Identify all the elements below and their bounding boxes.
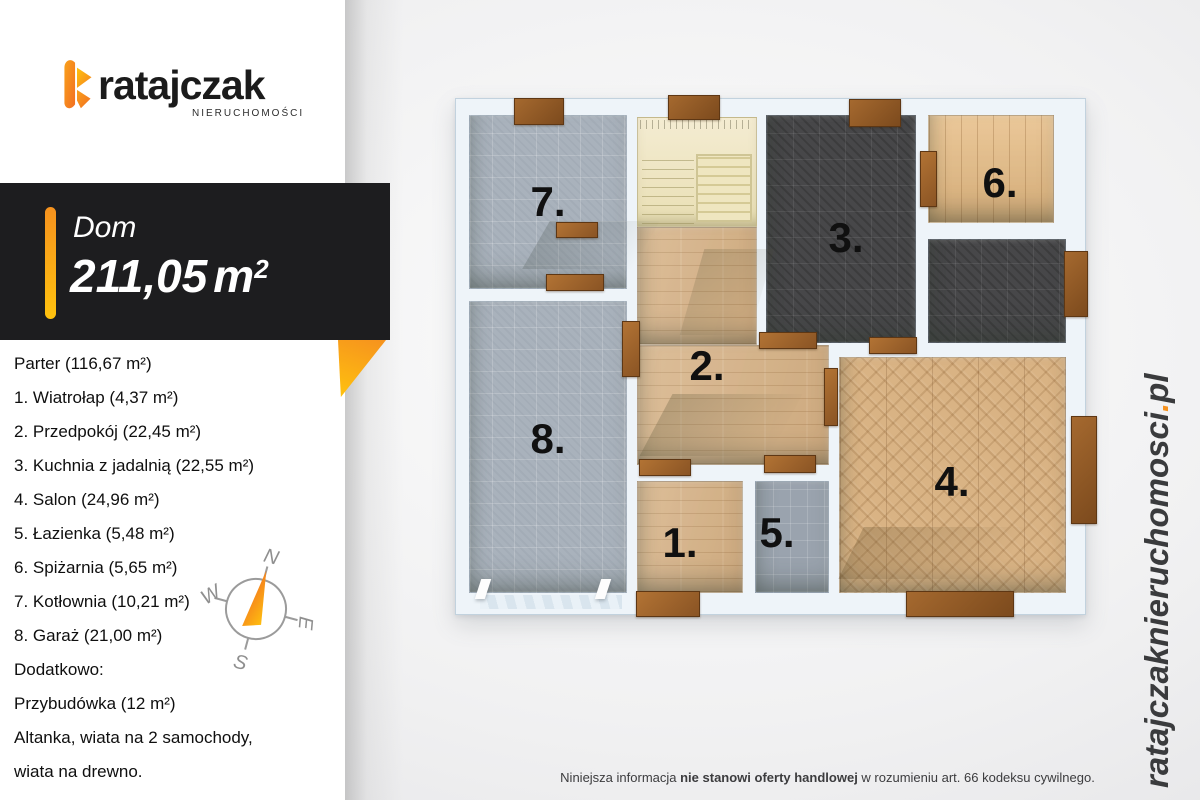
door-marker-entry (636, 591, 700, 617)
panel-shadow-gradient (345, 0, 403, 800)
door-marker-kuchnia-b (869, 337, 917, 354)
room-label-4: 4. (934, 458, 969, 506)
list-item-przybudowka: Przybudówka (12 m²) (14, 687, 334, 721)
list-item-przedpokoj: 2. Przedpokój (22,45 m²) (14, 415, 334, 449)
brand-name: ratajczak (98, 62, 265, 109)
brand-tagline: NIERUCHOMOŚCI (192, 108, 304, 119)
stairs-flight-right (696, 154, 752, 222)
compass-needle (242, 568, 275, 631)
stairs-sill (640, 120, 754, 129)
website-tld: pl (1138, 374, 1175, 403)
compass-north-label: N (261, 545, 281, 570)
ratajczak-logo-icon (58, 56, 96, 116)
room-label-7: 7. (530, 178, 565, 226)
list-item-altanka: Altanka, wiata na 2 samochody, (14, 721, 334, 755)
property-area: 211,05m2 (70, 249, 269, 303)
room-label-2: 2. (689, 342, 724, 390)
room-label-3: 3. (828, 214, 863, 262)
room-label-8: 8. (530, 415, 565, 463)
property-type: Dom (73, 211, 136, 245)
compass: N W E S (198, 545, 314, 675)
door-marker-wiatrolap (639, 459, 691, 476)
property-banner: Dom 211,05m2 (0, 183, 390, 340)
disclaimer-prefix: Niniejsza informacja (560, 770, 680, 785)
area-value: 211,05 (70, 250, 207, 302)
room-3-kuchnia-b (928, 239, 1066, 343)
window-marker-top-3 (849, 99, 901, 127)
window-marker-top-2 (668, 95, 720, 120)
door-marker-spizarnia (920, 151, 937, 207)
area-sup: 2 (254, 254, 268, 284)
door-marker-garaz (622, 321, 640, 377)
room-label-6: 6. (982, 159, 1017, 207)
room-label-5: 5. (759, 509, 794, 557)
door-marker-kotlownia-b (546, 274, 604, 291)
door-marker-lazienka (764, 455, 816, 473)
window-marker-top-1 (514, 98, 564, 125)
list-item-parter: Parter (116,67 m²) (14, 347, 334, 381)
room-label-1: 1. (662, 519, 697, 567)
window-marker-bottom-salon (906, 591, 1014, 617)
accent-bar (45, 207, 56, 319)
compass-west-label: W (198, 580, 226, 610)
list-item-kuchnia: 3. Kuchnia z jadalnią (22,55 m²) (14, 449, 334, 483)
website-url[interactable]: ratajczaknieruchomosci.pl (1138, 348, 1176, 788)
room-2-przedpokoj (637, 345, 829, 465)
door-marker-kotlownia-a (556, 222, 598, 238)
room-2-corridor (637, 227, 757, 345)
area-unit: m (213, 250, 254, 302)
door-marker-kuchnia-a (759, 332, 817, 349)
disclaimer-bold: nie stanowi oferty handlowej (680, 770, 858, 785)
disclaimer: Niniejsza informacja nie stanowi oferty … (455, 770, 1200, 785)
website-dot: . (1138, 403, 1175, 412)
stairs (637, 117, 757, 227)
list-item-wiata: wiata na drewno. (14, 755, 334, 789)
floor-plan: 7. 8. 2. 3. 6. 4. 1. 5. (455, 98, 1086, 615)
compass-east-label: E (294, 615, 314, 631)
window-marker-right-2 (1071, 416, 1097, 524)
list-item-wiatrolap: 1. Wiatrołap (4,37 m²) (14, 381, 334, 415)
list-item-salon: 4. Salon (24,96 m²) (14, 483, 334, 517)
website-name: ratajczaknieruchomosci (1138, 412, 1175, 788)
window-marker-right-1 (1064, 251, 1088, 317)
compass-south-label: S (231, 650, 250, 675)
door-marker-salon (824, 368, 838, 426)
disclaimer-suffix: w rozumieniu art. 66 kodeksu cywilnego. (858, 770, 1095, 785)
stairs-flight-left (642, 158, 694, 224)
